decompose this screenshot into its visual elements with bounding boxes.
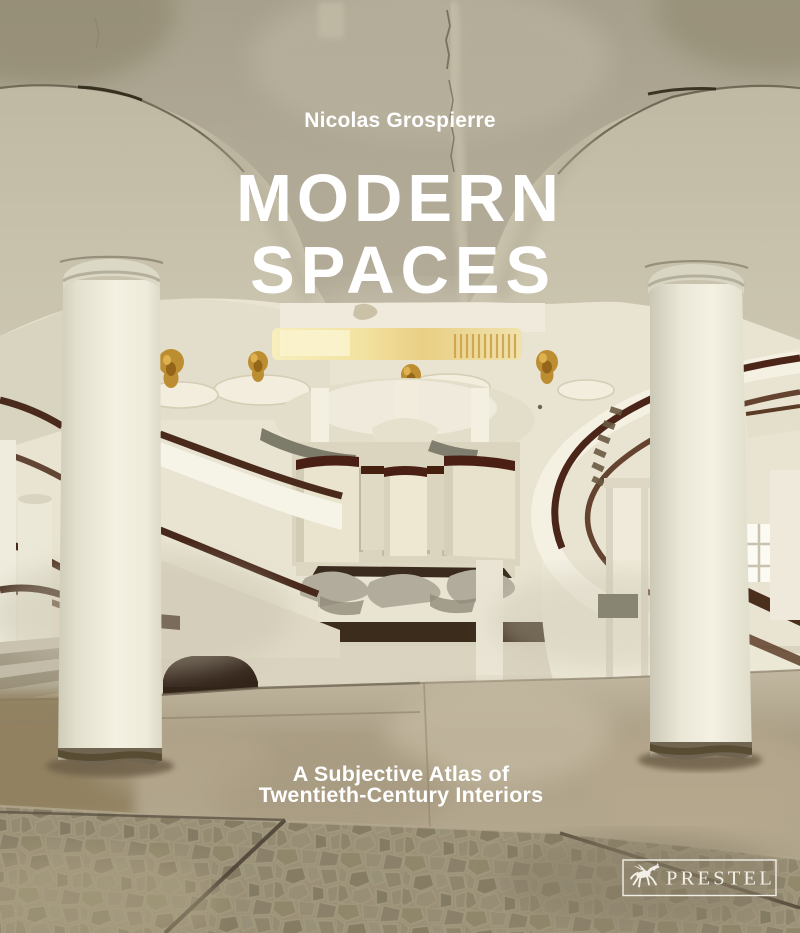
svg-text:SPACES: SPACES: [250, 233, 556, 308]
svg-text:Nicolas Grospierre: Nicolas Grospierre: [304, 109, 496, 132]
svg-text:PRESTEL: PRESTEL: [666, 868, 775, 890]
svg-text:Twentieth-Century Interiors: Twentieth-Century Interiors: [259, 783, 544, 807]
svg-text:MODERN: MODERN: [236, 161, 564, 236]
